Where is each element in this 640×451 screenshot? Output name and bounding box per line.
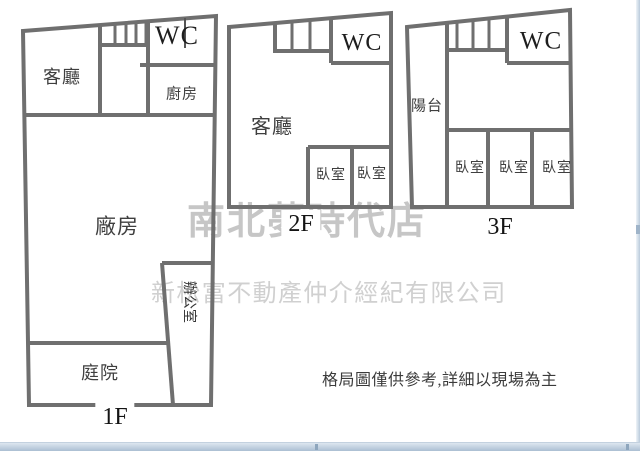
room-label-wc-1f: WC <box>155 23 199 49</box>
stairs-hatch-2f <box>292 20 310 51</box>
room-label-living-1f: 客廳 <box>43 68 81 86</box>
horizontal-scrollbar-thumb-edge[interactable] <box>315 444 318 450</box>
room-label-office-1f: 辦公室 <box>181 281 195 323</box>
room-label-bedroom1-2f: 臥室 <box>316 169 346 183</box>
floor-label-3f: 3F <box>480 213 519 241</box>
room-label-bedroom2-3f: 臥室 <box>499 162 529 176</box>
room-label-bedroom2-2f: 臥室 <box>357 168 387 182</box>
room-label-living-2f: 客廳 <box>251 117 293 137</box>
vertical-scrollbar-thumb[interactable] <box>636 225 640 234</box>
room-label-wc-2f: WC <box>342 31 383 55</box>
floor-label-2f: 2F <box>281 210 320 238</box>
room-label-factory-1f: 廠房 <box>95 217 139 238</box>
room-label-wc-3f: WC <box>520 29 562 54</box>
room-label-bedroom1-3f: 臥室 <box>455 162 485 176</box>
wall-segment <box>162 263 173 405</box>
horizontal-scrollbar[interactable] <box>0 442 640 451</box>
horizontal-scrollbar-thumb-edge[interactable] <box>626 444 629 450</box>
room-label-bedroom3-3f: 臥室 <box>542 162 572 176</box>
disclaimer-note: 格局圖僅供參考,詳細以現場為主 <box>322 366 558 390</box>
floorplan-image: 南北夢時代店 新松富不動產仲介經紀有限公司 <box>0 0 640 451</box>
vertical-scrollbar[interactable] <box>636 0 640 451</box>
room-label-yard-1f: 庭院 <box>81 364 119 382</box>
room-label-kitchen-1f: 廚房 <box>166 88 198 103</box>
floor-label-1f: 1F <box>95 403 134 431</box>
room-label-balcony-3f: 陽台 <box>411 100 443 115</box>
